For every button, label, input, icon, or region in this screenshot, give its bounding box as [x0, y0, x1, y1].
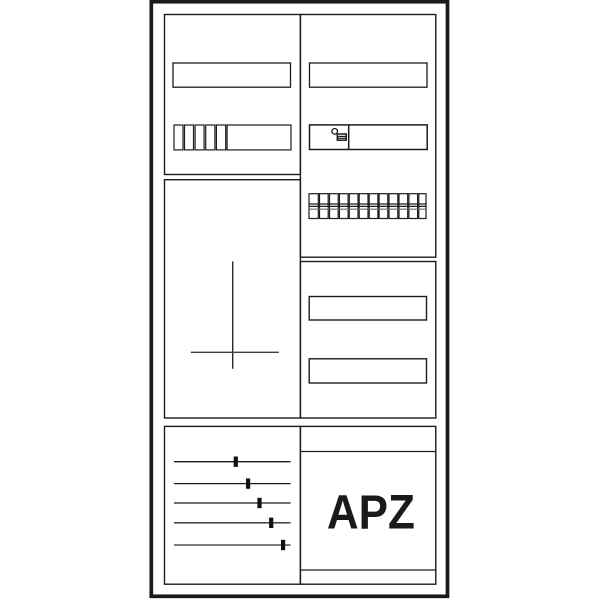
- svg-text:APZ: APZ: [327, 486, 415, 539]
